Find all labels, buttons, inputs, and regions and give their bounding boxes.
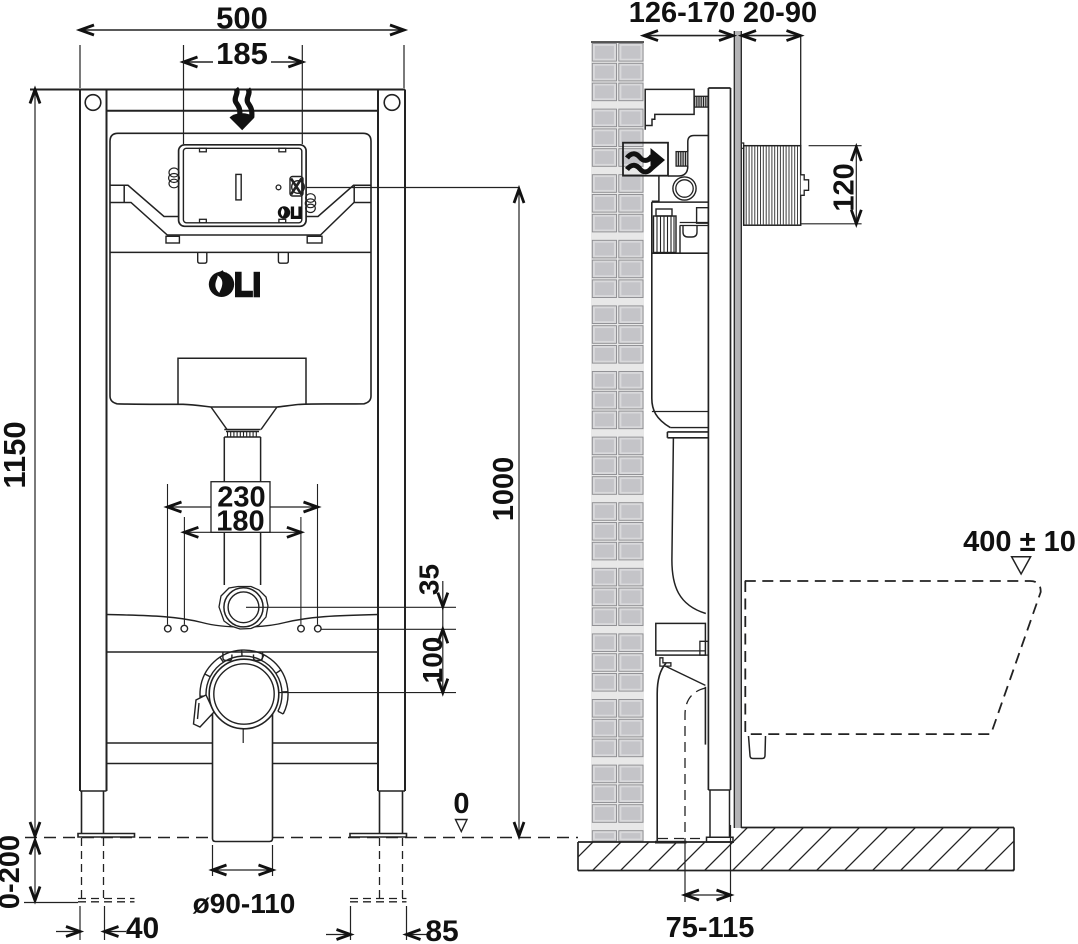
svg-text:185: 185: [216, 36, 268, 71]
svg-text:75-115: 75-115: [666, 912, 755, 944]
svg-text:85: 85: [425, 915, 458, 944]
svg-text:400 ± 10: 400 ± 10: [963, 526, 1076, 558]
svg-text:180: 180: [216, 506, 264, 538]
svg-text:500: 500: [216, 1, 268, 36]
svg-text:120: 120: [829, 163, 861, 211]
svg-text:1000: 1000: [488, 457, 520, 522]
svg-text:20-90: 20-90: [743, 0, 817, 29]
svg-text:100: 100: [417, 637, 448, 684]
svg-text:ø90-110: ø90-110: [193, 888, 296, 919]
svg-text:0: 0: [453, 788, 469, 820]
svg-text:35: 35: [414, 564, 445, 595]
svg-text:40: 40: [126, 912, 159, 944]
svg-text:126-170: 126-170: [629, 0, 735, 29]
svg-text:0-200: 0-200: [0, 835, 26, 909]
svg-text:1150: 1150: [0, 421, 32, 488]
